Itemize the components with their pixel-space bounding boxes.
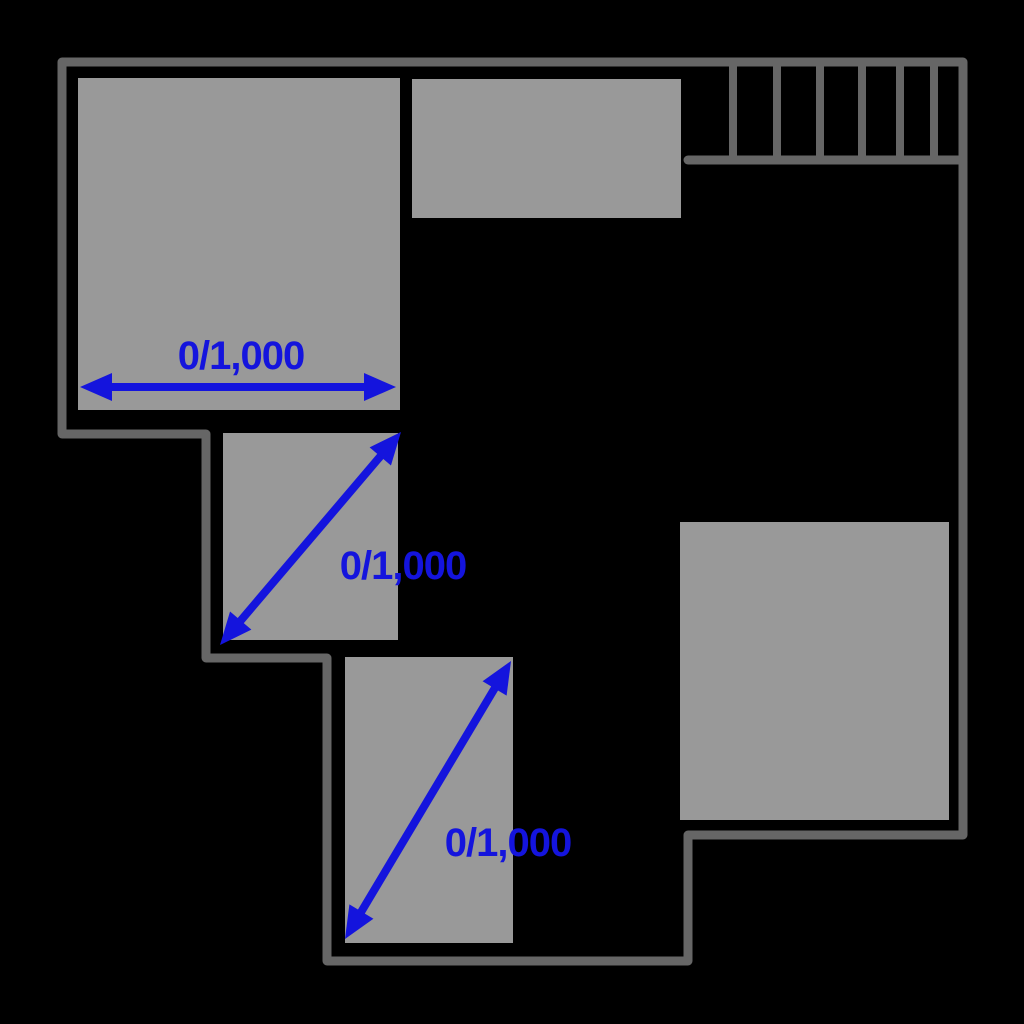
dimension-label-middle-room: 0/1,000	[340, 546, 466, 586]
room-top-middle	[412, 79, 681, 218]
room-right	[680, 522, 949, 820]
dimension-label-top-left-room: 0/1,000	[178, 336, 304, 376]
floorplan-stage: 0/1,000 0/1,000 0/1,000	[0, 0, 1024, 1024]
dimension-label-bottom-room: 0/1,000	[445, 823, 571, 863]
floor-plan	[0, 0, 1024, 1024]
